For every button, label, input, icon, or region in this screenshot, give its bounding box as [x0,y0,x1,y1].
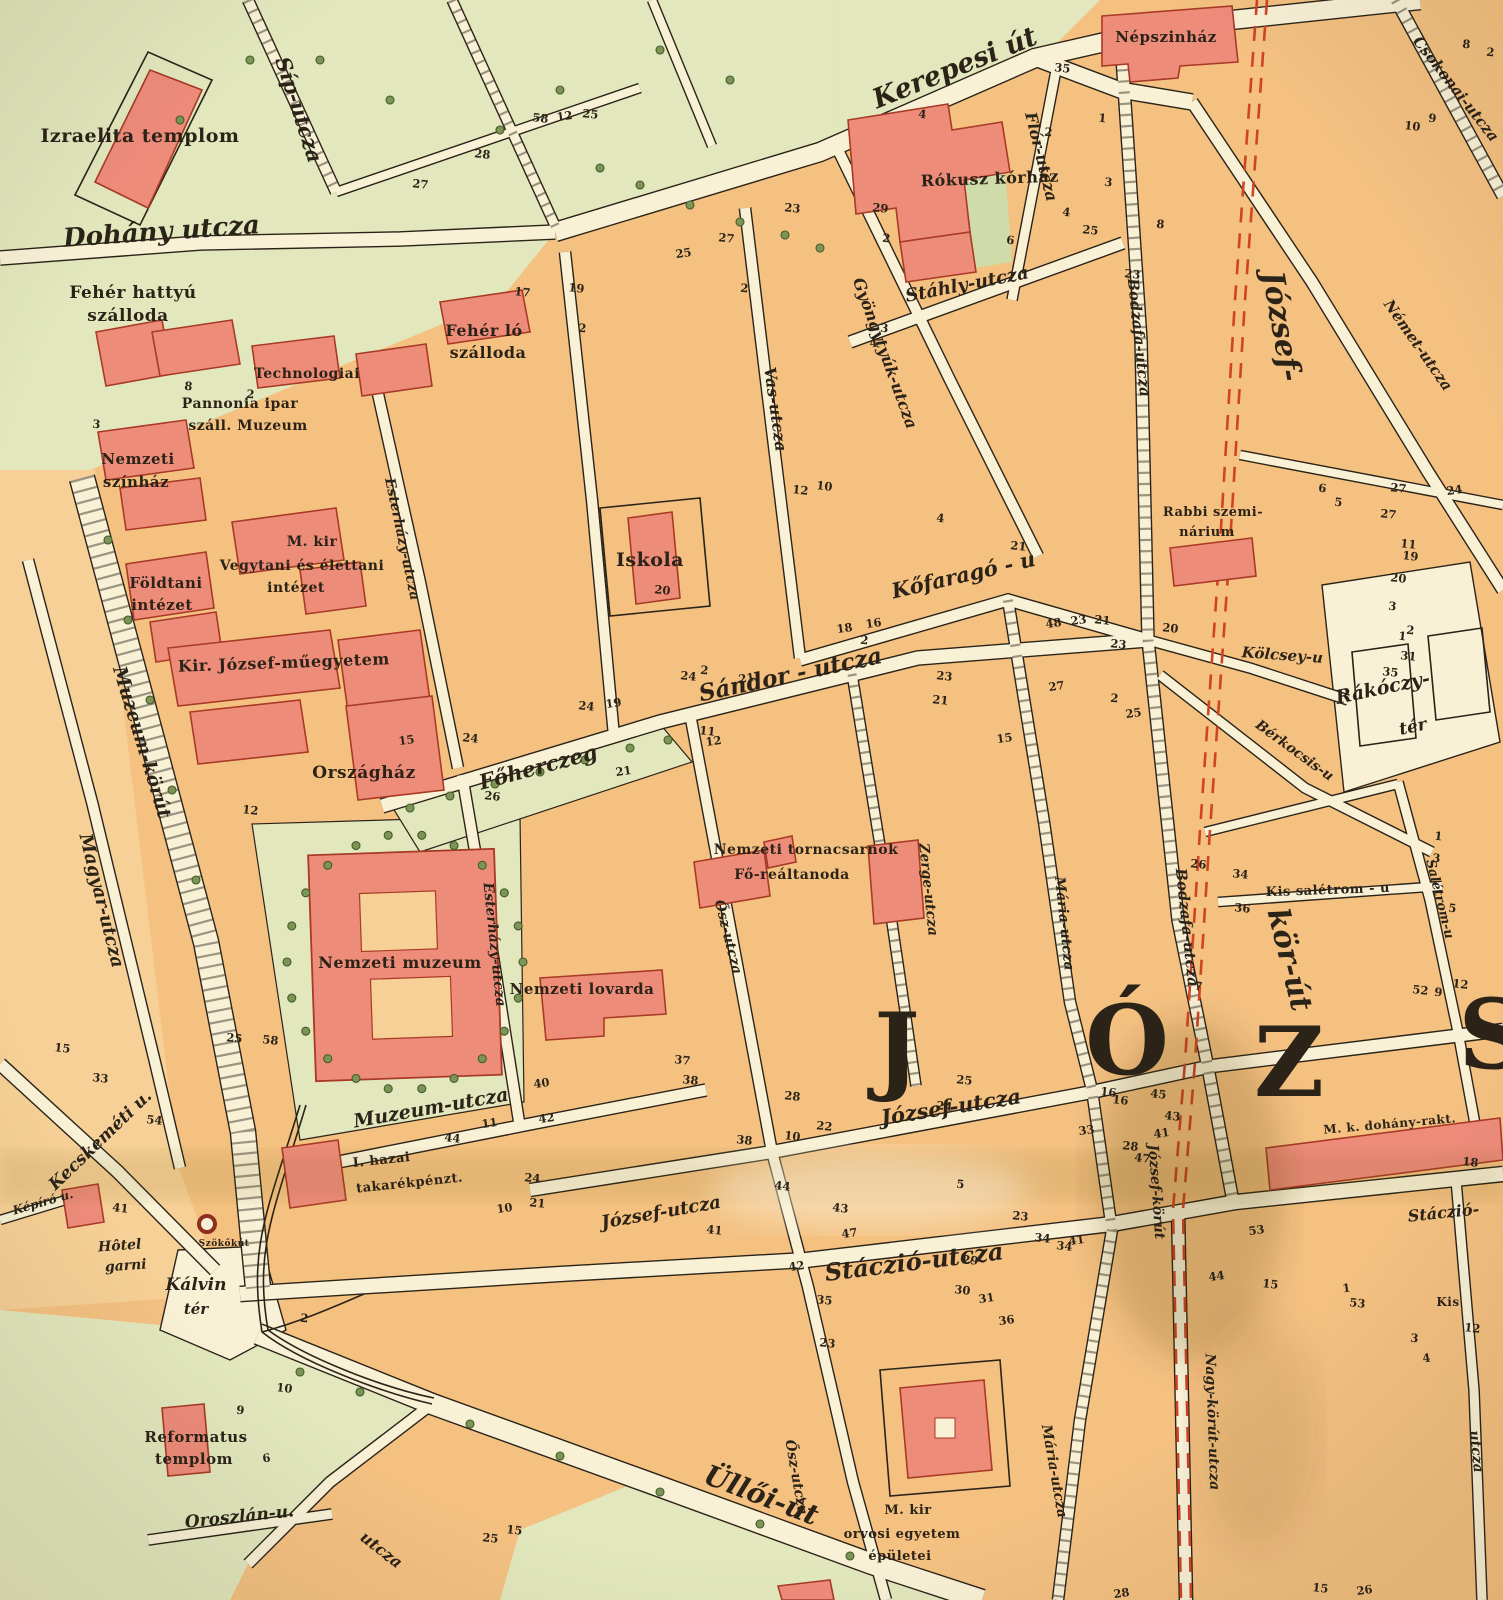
historic-city-map: JÓZS Dohány utczaSíp-utczaKerepesi útFló… [0,0,1503,1600]
vignette-overlay [0,0,1503,1600]
map-canvas: JÓZS Dohány utczaSíp-utczaKerepesi útFló… [0,0,1503,1600]
